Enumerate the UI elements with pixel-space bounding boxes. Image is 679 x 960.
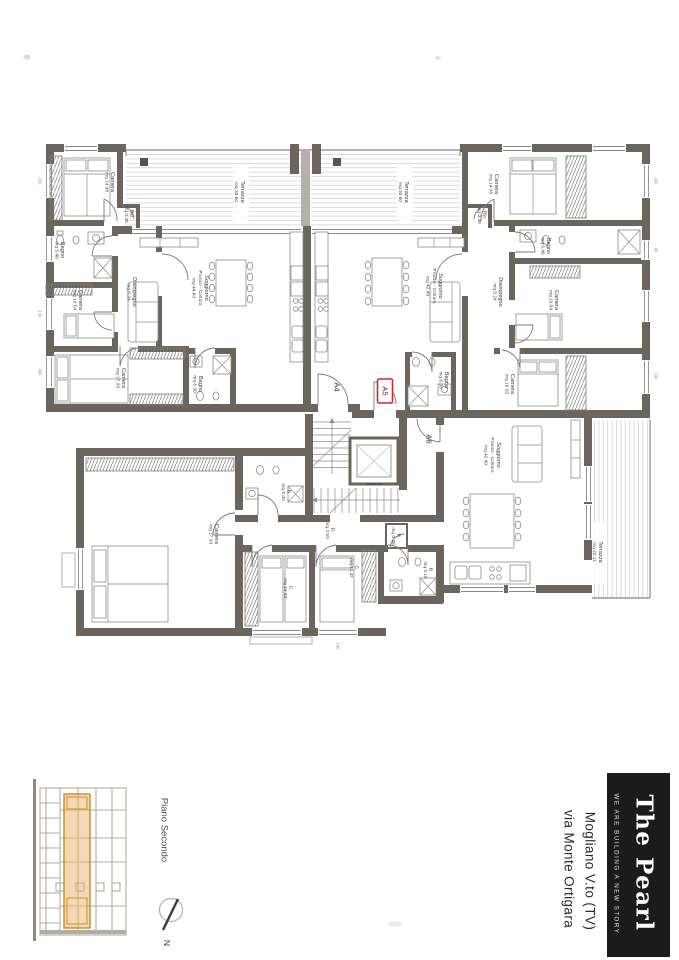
room-area: mq 17.03 xyxy=(114,368,120,388)
room-name: Camera xyxy=(109,172,115,193)
room-area: mq 5.46 xyxy=(53,241,59,259)
title-block: The Pearl WE ARE BUILDING A NEW STORY Mo… xyxy=(562,773,671,957)
section-floor-highlight xyxy=(64,794,90,928)
unit-label-a5: A5 xyxy=(381,386,390,395)
room-name: D. xyxy=(330,528,336,533)
kitchen-counter xyxy=(290,232,303,362)
room-area: mq 44.60 xyxy=(191,278,197,298)
room-name: Soggiorno xyxy=(495,442,501,468)
single-bed xyxy=(260,556,283,622)
sofa xyxy=(512,426,542,482)
room-name: C. xyxy=(288,586,294,591)
room-label-a4-bagno-1: Bagno mq 5.46 xyxy=(53,241,65,259)
room-area: mq 16.03 xyxy=(503,374,509,394)
window-sill xyxy=(62,553,75,587)
room-label-a4-terrazza: Terrazza mq 30.60 xyxy=(233,181,245,203)
room-area: mq 14.43 xyxy=(282,578,288,598)
room-area: mq 5.18 xyxy=(422,561,428,579)
room-name-2: Pranzo - Cottura xyxy=(431,268,437,304)
double-bed xyxy=(518,360,558,406)
room-label-a6-soggiorno: Soggiorno Pranzo - Cottura mq 42.40 xyxy=(483,437,501,473)
single-bed xyxy=(64,314,114,338)
dining-table xyxy=(365,258,409,306)
wardrobe xyxy=(530,266,580,278)
room-name-2: Pranzo - Cottura xyxy=(197,270,203,306)
wardrobe xyxy=(130,348,185,359)
double-bed xyxy=(92,546,168,622)
dimension-label: 160 xyxy=(38,311,43,319)
room-name: Camera xyxy=(77,290,83,311)
room-name: B. xyxy=(428,568,434,573)
room-label-a5-soggiorno: Soggiorno Pranzo - Cottura mq 42.40 xyxy=(425,268,443,304)
room-label-a4-disimpegno: Disimpegno mq 5.24 xyxy=(125,277,137,307)
wardrobe xyxy=(566,156,586,218)
unit-label-a4: A4 xyxy=(333,382,342,391)
room-area: mq 10.54 xyxy=(547,290,553,310)
wardrobe xyxy=(566,356,586,410)
room-label-a6-b2: B. mq 5.18 xyxy=(422,561,434,579)
dimension-label: 240 xyxy=(38,178,43,186)
room-area: mq 14.08 xyxy=(103,172,109,192)
room-area: mq 0.48 xyxy=(390,527,396,545)
room-area: mq 5.46 xyxy=(539,237,545,255)
room-label-a5-bagno-1: Bagno mq 5.46 xyxy=(539,237,551,255)
north-label: N xyxy=(162,940,172,946)
room-area: mq 2.50 xyxy=(324,521,330,539)
bathroom-fixtures xyxy=(390,558,436,596)
room-name: Soggiorno xyxy=(437,273,443,299)
floor-plan-sheet: Camera mq 14.08 Rip. mq 0.48 Bagno mq 5.… xyxy=(0,0,679,960)
room-label-a5-terrazza: Terrazza mq 30.60 xyxy=(397,181,409,203)
room-name: C. xyxy=(354,566,360,571)
room-label-a4-camera-2: Camera mq 10.54 xyxy=(71,290,83,311)
stairs-lower-flight xyxy=(312,488,400,513)
room-label-a4-bagno-2: Bagno mq 6.30 xyxy=(191,375,203,393)
unit-label-a5-highlight: A5 xyxy=(378,379,393,403)
room-label-a5-camera-3: Camera mq 16.03 xyxy=(503,374,515,395)
unit-label-a6: A6 xyxy=(425,434,434,443)
dining-table xyxy=(463,494,521,548)
room-area: mq 10.54 xyxy=(71,290,77,310)
dimension-label: 90 xyxy=(654,248,659,253)
room-label-a6-camera: Camera mq 17.03 xyxy=(207,524,219,545)
room-name: Camera xyxy=(553,290,559,311)
single-bed xyxy=(516,314,562,340)
room-area: mq 0.48 xyxy=(476,206,482,224)
room-area: mq 6.30 xyxy=(191,375,197,393)
room-area: mq 30.60 xyxy=(233,182,239,202)
room-name: R. xyxy=(396,534,402,539)
bathroom-fixtures xyxy=(520,230,640,254)
room-name: Disimpegno xyxy=(131,277,137,307)
room-name: Camera xyxy=(213,524,219,545)
room-name: Bagno xyxy=(545,238,551,254)
north-arrow-needle xyxy=(163,899,178,930)
room-label-a6-c2: C. mq 11.42 xyxy=(348,558,360,578)
dimension-label: 240 xyxy=(38,369,43,377)
room-name: Rip. xyxy=(129,210,135,219)
room-name: Soggiorno xyxy=(203,275,209,301)
floor-label: Piano Secondo xyxy=(159,798,170,862)
bathroom-fixtures xyxy=(246,466,303,503)
brand-tagline: WE ARE BUILDING A NEW STORY xyxy=(613,794,620,935)
window-ledge xyxy=(250,637,312,644)
double-bed xyxy=(510,158,556,214)
room-name: Camera xyxy=(120,368,126,389)
room-area: mq 5.24 xyxy=(125,283,131,301)
room-label-a6-terrazza: Terrazza mq 22.11 xyxy=(591,541,603,563)
wardrobe xyxy=(130,394,183,405)
room-area: mq 0.48 xyxy=(123,205,129,223)
double-bed xyxy=(64,158,110,216)
section-inset: Piano Secondo xyxy=(33,779,170,941)
sideboard xyxy=(140,238,198,247)
room-area: mq 11.42 xyxy=(348,558,354,578)
room-label-a6-d: D. mq 2.50 xyxy=(324,521,336,539)
floor-plan: Camera mq 14.08 Rip. mq 0.48 Bagno mq 5.… xyxy=(38,143,659,650)
room-name: Terrazza xyxy=(403,181,409,203)
sideboard xyxy=(418,238,464,247)
section-ground-line xyxy=(33,779,36,941)
room-label-a5-camera-2: Camera mq 10.54 xyxy=(547,290,559,311)
address-line-1: Mogliano V.to (TV) xyxy=(583,812,598,931)
north-arrow: N xyxy=(160,899,183,947)
room-name: Terrazza xyxy=(597,541,603,563)
room-area: mq 14.08 xyxy=(487,174,493,194)
room-label-a6-r: R. mq 0.48 xyxy=(390,527,402,545)
room-area: mq 30.60 xyxy=(397,182,403,202)
dimension-label: 240 xyxy=(654,373,659,381)
room-name-2: Pranzo - Cottura xyxy=(489,437,495,473)
room-area: mq 42.40 xyxy=(483,445,489,465)
address-line-2: via Monte Ortigara xyxy=(562,810,577,928)
room-label-a4-soggiorno: Soggiorno Pranzo - Cottura mq 44.60 xyxy=(191,270,209,306)
tv-bench xyxy=(571,420,580,478)
room-name: Bagno xyxy=(443,372,449,388)
dimension-label: 160 xyxy=(336,643,341,651)
terrace-post xyxy=(140,158,148,166)
wardrobe xyxy=(50,156,62,220)
wardrobe xyxy=(362,550,376,602)
room-area: mq 17.03 xyxy=(207,524,213,544)
room-name: Terrazza xyxy=(239,181,245,203)
room-label-a5-camera-1: Camera mq 14.08 xyxy=(487,174,499,195)
room-label-a5-bagno-2: Bagno mq 6.30 xyxy=(437,371,449,389)
room-name: Rip. xyxy=(482,211,488,220)
room-area: mq 5.00 xyxy=(280,483,286,501)
dining-table xyxy=(209,260,253,306)
room-area: mq 42.40 xyxy=(425,276,431,296)
room-label-a5-disimpegno: Disimpegno mq 5.24 xyxy=(491,277,503,307)
north-arrow-circle xyxy=(160,899,183,922)
wardrobe xyxy=(46,284,92,295)
wardrobe xyxy=(245,552,258,626)
room-name: Camera xyxy=(493,174,499,195)
room-name: Bagno xyxy=(197,376,203,392)
room-name: Disimpegno xyxy=(497,277,503,307)
room-area: mq 5.24 xyxy=(491,283,497,301)
dimension-label: 240 xyxy=(654,178,659,186)
brand-name: The Pearl xyxy=(631,794,658,931)
stairs-upper-flight xyxy=(313,418,351,474)
terrace-post xyxy=(333,158,341,166)
room-area: mq 22.11 xyxy=(591,542,597,562)
room-name: B. xyxy=(286,490,292,495)
room-name: Camera xyxy=(509,374,515,395)
room-label-a4-camera-3: Camera mq 17.03 xyxy=(114,368,126,389)
stairs-elevator xyxy=(312,418,400,513)
elevator xyxy=(350,438,398,484)
kitchen-counter xyxy=(450,562,530,584)
wardrobe xyxy=(86,458,234,471)
kitchen-counter xyxy=(315,232,328,362)
room-label-a4-camera-1: Camera mq 14.08 xyxy=(103,172,115,193)
room-name: Bagno xyxy=(59,242,65,258)
room-area: mq 6.30 xyxy=(437,371,443,389)
room-label-a5-rip: Rip. mq 0.48 xyxy=(476,206,488,224)
